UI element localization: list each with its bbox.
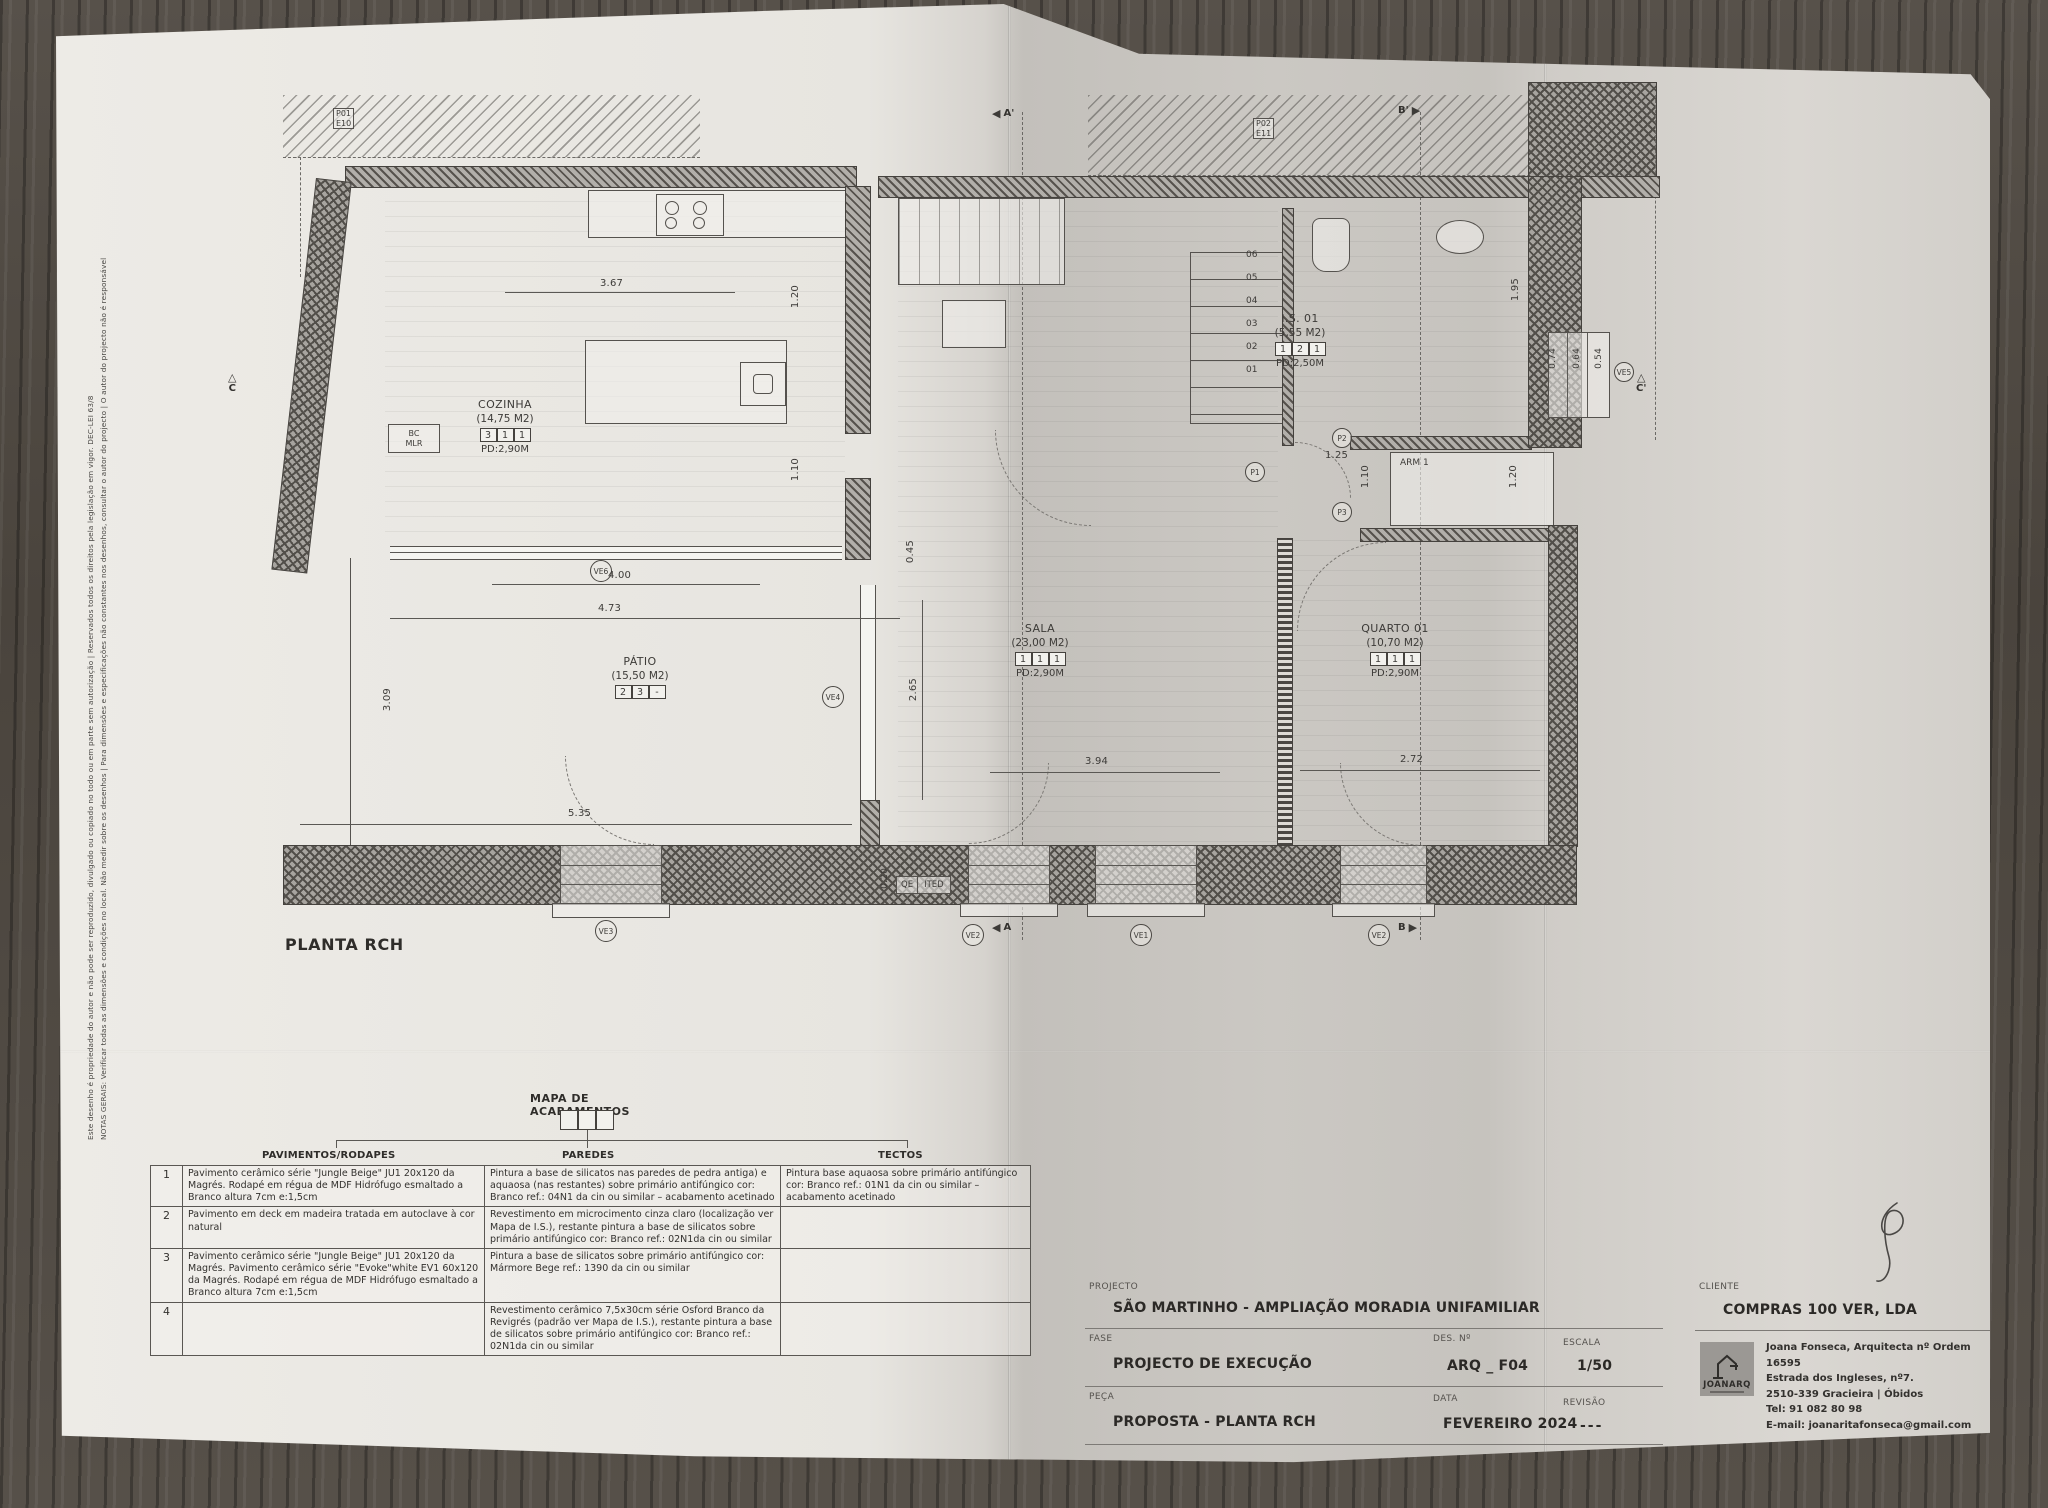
- finish-code-cell: 1: [1404, 652, 1421, 666]
- finish-code-cell: 2: [615, 685, 632, 699]
- niche-line: [1567, 333, 1568, 417]
- data-label: DATA: [1433, 1394, 1458, 1404]
- section-label-a-top: A': [1003, 108, 1014, 119]
- fase-label: FASE: [1089, 1334, 1113, 1344]
- stair-step-number: 04: [1246, 296, 1257, 306]
- cell-pavimentos: Pavimento em deck em madeira tratada em …: [183, 1207, 485, 1248]
- frame-line: [969, 884, 1049, 885]
- cell-tectos: [781, 1207, 1031, 1248]
- opening-tag-ve1: VE1: [1130, 924, 1152, 946]
- room-ceiling-height: PD:2,90M: [980, 668, 1100, 679]
- section-marker-c-right: △ C': [1636, 372, 1646, 394]
- sill-ve2-b: [1332, 903, 1435, 917]
- finish-code-cell: 1: [1049, 652, 1066, 666]
- marker-p2: P2: [1332, 428, 1352, 448]
- kitchen-sink: [740, 362, 786, 406]
- entry-closet: [898, 198, 1065, 285]
- cliente-block: CLIENTE COMPRAS 100 VER, LDA: [1695, 1280, 1990, 1331]
- section-label-a-bottom: A: [1003, 922, 1011, 933]
- appliance-box-bc-mlr: BC MLR: [388, 424, 440, 453]
- connector-line: [907, 1140, 908, 1148]
- dim-1-95: 1.95: [1510, 278, 1521, 301]
- frame-line: [1096, 865, 1196, 866]
- kitchen-east-wall: [845, 186, 871, 434]
- title-block-row-projecto: PROJECTO SÃO MARTINHO - AMPLIAÇÃO MORADI…: [1085, 1280, 1663, 1329]
- frame-line: [1341, 884, 1426, 885]
- quarto-east-wall: [1548, 525, 1578, 847]
- cell-tectos: [781, 1248, 1031, 1302]
- revisao-value: ---: [1580, 1418, 1603, 1434]
- room-ceiling-height: PD:2,90M: [1330, 668, 1460, 679]
- logo-subtext-bar: [1710, 1391, 1744, 1393]
- signature: [1855, 1195, 1935, 1290]
- dim-0-54: 0.54: [1594, 348, 1604, 369]
- ve5-label: VE5: [1617, 368, 1632, 377]
- contact-email: E-mail: joanaritafonseca@gmail.com: [1766, 1418, 1996, 1434]
- joanarq-logo: JOANARQ: [1700, 1342, 1754, 1396]
- peca-label: PEÇA: [1089, 1392, 1114, 1402]
- frame-line: [561, 884, 661, 885]
- section-marker-a-bottom: ◀ A: [992, 922, 1011, 933]
- finish-codes: 3 1 1: [445, 428, 565, 442]
- room-area: (15,50 M2): [575, 670, 705, 682]
- data-value: FEVEREIRO 2024: [1443, 1416, 1577, 1432]
- des-label: DES. Nº: [1433, 1334, 1471, 1344]
- cell-paredes: Pintura a base de silicatos nas paredes …: [485, 1166, 781, 1207]
- opening-tag-ve2-a: VE2: [962, 924, 984, 946]
- frame-line: [969, 865, 1049, 866]
- ve2-label: VE2: [966, 931, 981, 940]
- dim-1-10-b: 1.10: [1360, 465, 1371, 488]
- section-triangle-icon: △: [1636, 372, 1646, 383]
- key-cell: [578, 1110, 596, 1130]
- cell-pavimentos: Pavimento cerâmico série "Jungle Beige" …: [183, 1248, 485, 1302]
- stove-burner-icon: [693, 217, 705, 229]
- stove-burner-icon: [665, 217, 677, 229]
- key-cell: [596, 1110, 614, 1130]
- cell-tectos: [781, 1302, 1031, 1356]
- ve3-label: VE3: [599, 927, 614, 936]
- dim-line: [922, 600, 923, 800]
- des-value: ARQ _ F04: [1447, 1358, 1528, 1374]
- title-block: PROJECTO SÃO MARTINHO - AMPLIAÇÃO MORADI…: [1085, 1280, 1663, 1445]
- stair-step-number: 05: [1246, 273, 1257, 283]
- section-marker-b-bottom: B ▶: [1398, 922, 1417, 933]
- plan-title: PLANTA RCH: [285, 935, 404, 954]
- p2-label: P2: [1337, 434, 1346, 443]
- stove: [656, 194, 724, 236]
- contact-address2: 2510-339 Gracieira | Óbidos: [1766, 1387, 1996, 1403]
- section-marker-a-top: ◀ A': [992, 108, 1014, 119]
- finish-codes: 1 2 1: [1240, 342, 1360, 356]
- dim-0-45: 0.45: [905, 540, 916, 563]
- dim-3-09: 3.09: [382, 688, 393, 711]
- window-tag-ve4: VE4: [822, 686, 844, 708]
- room-label-sala: SALA (23,00 M2) 1 1 1 PD:2,90M: [980, 622, 1100, 679]
- finish-code-cell: 3: [480, 428, 497, 442]
- dim-line: [492, 584, 760, 585]
- section-label-c-left: C: [228, 383, 236, 394]
- room-label-is01: I.S. 01 (5,55 M2) 1 2 1 PD:2,50M: [1240, 312, 1360, 369]
- label-qe: QE: [896, 876, 918, 894]
- tag-e11: E11: [1256, 129, 1271, 139]
- frame-line: [1096, 884, 1196, 885]
- tag-p02-e11: P02 E11: [1253, 118, 1274, 139]
- column-header-tectos: TECTOS: [878, 1150, 923, 1161]
- table-row: 4 Revestimento cerâmico 7,5x30cm série O…: [151, 1302, 1031, 1356]
- finish-codes: 1 1 1: [980, 652, 1100, 666]
- cell-tectos: Pintura base aquaosa sobre primário anti…: [781, 1166, 1031, 1207]
- kitchen-west-stone-wall: [271, 178, 351, 574]
- room-area: (14,75 M2): [445, 413, 565, 425]
- stair-step-number: 06: [1246, 250, 1257, 260]
- column-header-pavimentos: PAVIMENTOS/RODAPES: [262, 1150, 395, 1161]
- dim-0-74: 0.74: [1548, 348, 1558, 369]
- architect-contact: Joana Fonseca, Arquitecta nº Ordem 16595…: [1766, 1340, 1996, 1433]
- table-row: 1 Pavimento cerâmico série "Jungle Beige…: [151, 1166, 1031, 1207]
- dim-line: [990, 772, 1220, 773]
- key-cell: [560, 1110, 578, 1130]
- label-arm1: ARM 1: [1400, 458, 1429, 468]
- title-block-row-fase: FASE PROJECTO DE EXECUÇÃO DES. Nº ARQ _ …: [1085, 1328, 1663, 1387]
- room-area: (10,70 M2): [1330, 637, 1460, 649]
- finish-codes: 2 3 -: [575, 685, 705, 699]
- contact-name: Joana Fonseca, Arquitecta nº Ordem 16595: [1766, 1340, 1996, 1371]
- column-header-paredes: PAREDES: [562, 1150, 614, 1161]
- entry-cabinet: [942, 300, 1006, 348]
- label-bc: BC: [391, 429, 437, 439]
- escala-value: 1/50: [1577, 1358, 1612, 1374]
- peca-value: PROPOSTA - PLANTA RCH: [1113, 1414, 1316, 1430]
- contact-phone: Tel: 91 082 80 98: [1766, 1402, 1996, 1418]
- opening-tag-ve2-b: VE2: [1368, 924, 1390, 946]
- section-arrow-left-icon: ◀: [992, 922, 1000, 933]
- finish-code-cell: 2: [1292, 342, 1309, 356]
- finish-code-cell: 1: [1387, 652, 1404, 666]
- sill-ve2-a: [960, 903, 1058, 917]
- room-name: SALA: [980, 622, 1100, 635]
- finish-code-cell: 1: [1309, 342, 1326, 356]
- cell-pavimentos: [183, 1302, 485, 1356]
- dim-0-64: 0.64: [1572, 348, 1582, 369]
- section-marker-c-left: △ C: [228, 372, 236, 394]
- finish-code-cell: 1: [514, 428, 531, 442]
- connector-line: [336, 1140, 907, 1141]
- room-area: (23,00 M2): [980, 637, 1100, 649]
- finish-code-cell: 1: [1032, 652, 1049, 666]
- room-label-cozinha: COZINHA (14,75 M2) 3 1 1 PD:2,90M: [445, 398, 565, 455]
- sink-basin-icon: [753, 374, 773, 394]
- dim-line: [505, 292, 735, 293]
- is01-south-wall: [1350, 436, 1532, 450]
- dim-line: [390, 618, 900, 619]
- room-label-patio: PÁTIO (15,50 M2) 2 3 -: [575, 655, 705, 699]
- dim-1-20: 1.20: [790, 285, 801, 308]
- p3-label: P3: [1337, 508, 1346, 517]
- stove-burner-icon: [693, 201, 707, 215]
- opening-ve2-b: [1340, 845, 1427, 905]
- finish-code-cell: -: [649, 685, 666, 699]
- table-row: 3 Pavimento cerâmico série "Jungle Beige…: [151, 1248, 1031, 1302]
- projecto-label: PROJECTO: [1089, 1282, 1138, 1292]
- opening-tag-ve3: VE3: [595, 920, 617, 942]
- title-block-row-peca: PEÇA PROPOSTA - PLANTA RCH DATA FEVEREIR…: [1085, 1386, 1663, 1445]
- cliente-label: CLIENTE: [1699, 1282, 1739, 1292]
- dim-1-25: 1.25: [1325, 450, 1348, 461]
- section-arrow-right-icon: ▶: [1412, 105, 1420, 116]
- finish-code-cell: 1: [1015, 652, 1032, 666]
- section-marker-b-top: B' ▶: [1398, 105, 1420, 116]
- sill-ve3: [552, 903, 670, 918]
- ve2-label: VE2: [1372, 931, 1387, 940]
- section-arrow-left-icon: ◀: [992, 108, 1000, 119]
- dim-line: [1300, 770, 1540, 771]
- section-label-b-bottom: B: [1398, 922, 1406, 933]
- contact-address1: Estrada dos Ingleses, nº7.: [1766, 1371, 1996, 1387]
- p1-label: P1: [1250, 468, 1259, 477]
- kitchen-east-wall-lower: [845, 478, 871, 560]
- opening-ve3: [560, 845, 662, 905]
- marker-p3: P3: [1332, 502, 1352, 522]
- dim-3-94: 3.94: [1085, 756, 1108, 767]
- finish-code-cell: 3: [632, 685, 649, 699]
- frame-line: [1341, 865, 1426, 866]
- table-row: 2 Pavimento em deck em madeira tratada e…: [151, 1207, 1031, 1248]
- section-label-c-right: C': [1636, 383, 1646, 394]
- logo-text: JOANARQ: [1703, 1380, 1751, 1390]
- floor-plan: P01 E10 P02 E11 ◀ A' ◀ A B' ▶ B ▶ △ C △ …: [0, 0, 2048, 1060]
- finish-code-cell: 1: [1370, 652, 1387, 666]
- room-name: QUARTO 01: [1330, 622, 1460, 635]
- tag-p01-e10: P01 E10: [333, 108, 354, 129]
- dim-1-10: 1.10: [790, 458, 801, 481]
- room-label-quarto: QUARTO 01 (10,70 M2) 1 1 1 PD:2,90M: [1330, 622, 1460, 679]
- cell-paredes: Pintura a base de silicatos sobre primár…: [485, 1248, 781, 1302]
- frame-line: [561, 865, 661, 866]
- dim-2-72: 2.72: [1400, 754, 1423, 765]
- finish-code-cell: 1: [497, 428, 514, 442]
- section-arrow-right-icon: ▶: [1409, 922, 1417, 933]
- tag-p01: P01: [336, 109, 351, 119]
- connector-line: [587, 1130, 588, 1148]
- dim-4-73: 4.73: [598, 603, 621, 614]
- row-number: 3: [151, 1248, 183, 1302]
- joanarq-house-icon: [1712, 1354, 1742, 1380]
- opening-ve1: [1095, 845, 1197, 905]
- cell-paredes: Revestimento cerâmico 7,5x30cm série Osf…: [485, 1302, 781, 1356]
- row-number: 2: [151, 1207, 183, 1248]
- cell-paredes: Revestimento em microcimento cinza claro…: [485, 1207, 781, 1248]
- opening-ve2-a: [968, 845, 1050, 905]
- room-ceiling-height: PD:2,90M: [445, 444, 565, 455]
- window-niche: [1548, 332, 1610, 418]
- patio-east-wall-lower: [860, 800, 880, 847]
- section-label-b-top: B': [1398, 105, 1409, 116]
- window-tag-ve5: VE5: [1614, 362, 1634, 382]
- niche-line: [1587, 333, 1588, 417]
- cliente-value: COMPRAS 100 VER, LDA: [1723, 1302, 1917, 1318]
- finish-code-cell: 1: [1275, 342, 1292, 356]
- row-number: 1: [151, 1166, 183, 1207]
- room-name: COZINHA: [445, 398, 565, 411]
- row-number: 4: [151, 1302, 183, 1356]
- ve4-label: VE4: [826, 693, 841, 702]
- section-triangle-icon: △: [228, 372, 236, 383]
- boundary-dashed-left: [300, 157, 301, 277]
- dim-1-20-b: 1.20: [1508, 465, 1519, 488]
- finish-codes: 1 1 1: [1330, 652, 1460, 666]
- revisao-label: REVISÃO: [1563, 1398, 1606, 1408]
- dim-5-35: 5.35: [568, 808, 591, 819]
- room-ceiling-height: PD:2,50M: [1240, 358, 1360, 369]
- toilet: [1312, 218, 1350, 272]
- projecto-value: SÃO MARTINHO - AMPLIAÇÃO MORADIA UNIFAMI…: [1113, 1300, 1540, 1316]
- dim-3-67: 3.67: [600, 278, 623, 289]
- window-center-line: [390, 552, 842, 553]
- connector-line: [336, 1140, 337, 1148]
- kitchen-north-wall: [345, 166, 857, 188]
- dim-0-20: 0.20: [880, 868, 890, 889]
- ve1-label: VE1: [1134, 931, 1149, 940]
- utility-box-qe-ited: QE ITED: [896, 876, 951, 894]
- finishes-table: 1 Pavimento cerâmico série "Jungle Beige…: [150, 1165, 1031, 1356]
- fase-value: PROJECTO DE EXECUÇÃO: [1113, 1356, 1312, 1372]
- room-name: I.S. 01: [1240, 312, 1360, 325]
- room-area: (5,55 M2): [1240, 327, 1360, 339]
- escala-label: ESCALA: [1563, 1338, 1601, 1348]
- room-name: PÁTIO: [575, 655, 705, 668]
- tag-p02: P02: [1256, 119, 1271, 129]
- cell-pavimentos: Pavimento cerâmico série "Jungle Beige" …: [183, 1166, 485, 1207]
- dim-4-00: 4.00: [608, 570, 631, 581]
- existing-wall-top-right: [1528, 82, 1657, 178]
- stove-burner-icon: [665, 201, 679, 215]
- marker-p1: P1: [1245, 462, 1265, 482]
- label-mlr: MLR: [391, 439, 437, 449]
- label-ited: ITED: [918, 876, 951, 894]
- washbasin: [1436, 220, 1484, 254]
- sill-ve1: [1087, 903, 1205, 917]
- finishes-key-icon: [560, 1110, 614, 1130]
- tag-e10: E10: [336, 119, 351, 129]
- property-line-right: [1655, 95, 1656, 440]
- dim-line: [300, 824, 852, 825]
- dim-2-65: 2.65: [908, 678, 919, 701]
